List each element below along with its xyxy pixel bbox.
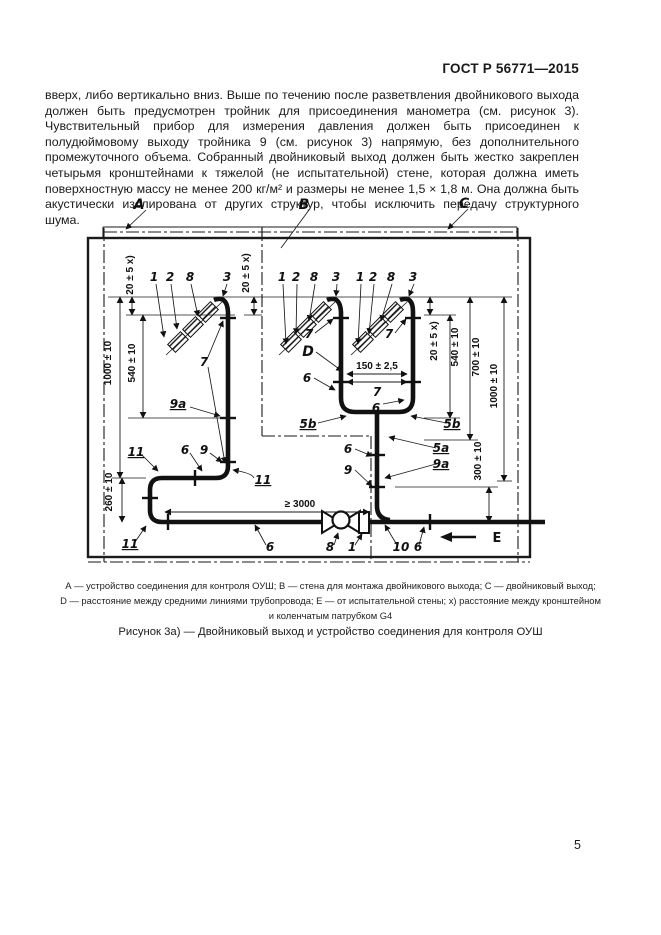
- legend-line-1: А — устройство соединения для контроля О…: [40, 578, 621, 593]
- part-label-2: 2: [369, 270, 377, 284]
- part-label-7: 7: [385, 327, 394, 341]
- part-label-5a: 5a: [433, 441, 449, 455]
- part-label-11: 11: [122, 537, 139, 551]
- part-label-11: 11: [255, 473, 272, 487]
- dim-1000-right: 1000 ± 10: [489, 363, 500, 408]
- dim-300: 300 ± 10: [473, 441, 484, 480]
- wall-bracket-assemblies: [166, 302, 407, 355]
- dim-700: 700 ± 10: [471, 337, 482, 376]
- part-label-6: 6: [181, 443, 189, 457]
- zone-label-b: B: [299, 197, 310, 213]
- dim-1000-left: 1000 ± 10: [103, 340, 114, 385]
- dim-540-right: 540 ± 10: [450, 327, 461, 366]
- dim-20-5x-right: 20 ± 5 x): [429, 321, 440, 360]
- part-label-9a: 9a: [170, 397, 186, 411]
- part-label-3: 3: [332, 270, 340, 284]
- part-label-6: 6: [344, 442, 352, 456]
- part-label-10: 10: [393, 540, 410, 554]
- part-label-7: 7: [373, 385, 382, 399]
- part-label-6: 6: [266, 540, 274, 554]
- zone-label-a: A: [133, 197, 145, 213]
- part-label-9: 9: [200, 443, 208, 457]
- figure-legend: А — устройство соединения для контроля О…: [40, 578, 621, 623]
- dim-20-5x-mid: 20 ± 5 x): [241, 253, 252, 292]
- part-label-6: 6: [372, 401, 380, 415]
- part-label-6: 6: [303, 371, 311, 385]
- figure-3a-diagram: A B C D E 1 2 8 3 1 2 8 3 1 2 8 3 7 7 7 …: [0, 0, 661, 935]
- part-label-1: 1: [356, 270, 364, 284]
- part-label-9: 9: [344, 463, 352, 477]
- zone-label-d: D: [302, 344, 314, 360]
- legend-line-2: D — расстояние между средними линиями тр…: [40, 593, 621, 608]
- part-label-8: 8: [310, 270, 318, 284]
- standard-document-page: ГОСТ Р 56771—2015 вверх, либо вертикальн…: [0, 0, 661, 935]
- part-label-8: 8: [186, 270, 194, 284]
- part-label-9a: 9a: [433, 457, 449, 471]
- zone-leaders: [126, 209, 476, 542]
- part-label-1: 1: [150, 270, 158, 284]
- dim-150: 150 ± 2,5: [356, 361, 398, 372]
- dim-260: 260 ± 10: [104, 472, 115, 511]
- legend-line-3: и коленчатым патрубком G4: [40, 608, 621, 623]
- part-label-5b: 5b: [444, 417, 461, 431]
- part-label-2: 2: [166, 270, 174, 284]
- part-label-11: 11: [128, 445, 145, 459]
- dim-3000: ≥ 3000: [285, 499, 316, 510]
- dim-20-5x-left: 20 ± 5 x): [125, 255, 136, 294]
- part-label-3: 3: [223, 270, 231, 284]
- part-label-2: 2: [292, 270, 300, 284]
- part-label-7: 7: [200, 355, 209, 369]
- page-number: 5: [574, 838, 581, 852]
- shutoff-valve: [322, 511, 369, 533]
- part-label-7: 7: [305, 327, 314, 341]
- part-label-6: 6: [414, 540, 422, 554]
- part-label-3: 3: [409, 270, 417, 284]
- zone-label-e: E: [493, 531, 502, 546]
- pipe-runs: [150, 299, 545, 522]
- part-label-8: 8: [387, 270, 395, 284]
- part-label-5b: 5b: [300, 417, 317, 431]
- part-label-1: 1: [278, 270, 286, 284]
- part-label-8: 8: [326, 540, 334, 554]
- flange-fitting: [359, 512, 369, 533]
- part-label-1: 1: [348, 540, 356, 554]
- figure-caption: Рисунок 3а) — Двойниковый выход и устрой…: [40, 626, 621, 638]
- dim-540-left: 540 ± 10: [127, 343, 138, 382]
- zone-label-c: C: [459, 196, 470, 212]
